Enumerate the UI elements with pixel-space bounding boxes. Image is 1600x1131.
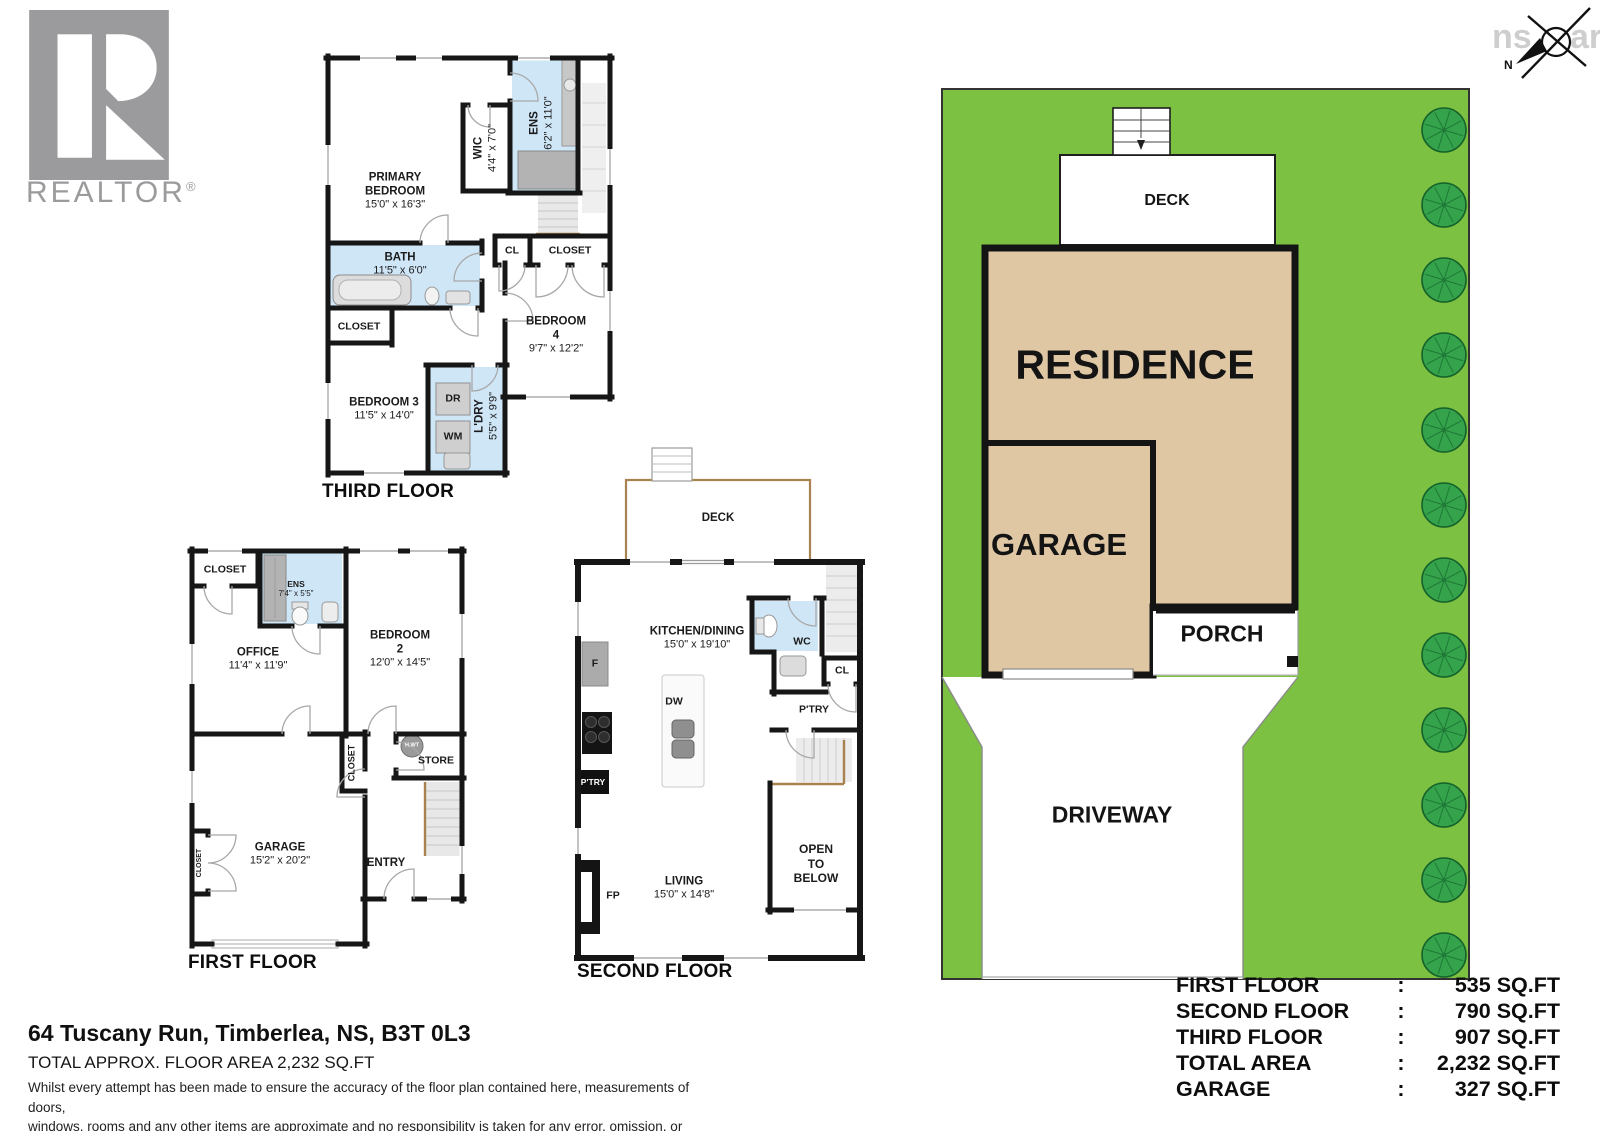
realtor-logo-icon [28, 10, 170, 180]
first-floor-title: FIRST FLOOR [188, 952, 317, 974]
appliance-label-fridge: F [592, 658, 598, 671]
disclaimer-line-1: Whilst every attempt has been made to en… [28, 1078, 728, 1117]
room-label-closet-small: CLOSET [338, 321, 381, 334]
area-row-value: 907 SQ.FT [1408, 1024, 1560, 1050]
room-label-closet-hall: CLOSET [549, 245, 592, 258]
open-to-below-label: OPEN TO BELOW [791, 842, 841, 886]
third-floor-title: THIRD FLOOR [322, 481, 454, 503]
room-label-store: STORE [418, 755, 454, 768]
room-label-laundry: L'DRY 5'5" x 9'9" [474, 392, 501, 440]
registered-mark: ® [186, 179, 199, 194]
table-row: TOTAL AREA : 2,232 SQ.FT [1176, 1050, 1560, 1076]
north-label: N [1504, 58, 1513, 72]
room-label-closet-top: CLOSET [204, 564, 247, 577]
first-stairs [425, 782, 462, 856]
room-label-bedroom4: BEDROOM 4 9'7" x 12'2" [526, 314, 586, 355]
area-row-value: 790 SQ.FT [1408, 998, 1560, 1024]
room-label-pantry-left: P'TRY [581, 777, 605, 787]
area-row-label: GARAGE [1176, 1076, 1394, 1102]
disclaimer-line-2: windows, rooms and any other items are a… [28, 1117, 728, 1131]
second-floor-title: SECOND FLOOR [577, 961, 732, 983]
room-label-bedroom3: BEDROOM 3 11'5" x 14'0" [349, 395, 419, 422]
room-label-cl2: CL [835, 665, 849, 678]
table-row: GARAGE : 327 SQ.FT [1176, 1076, 1560, 1102]
appliance-label-dishwasher: DW [665, 696, 683, 709]
room-label-bath: BATH 11'5" x 6'0" [373, 250, 426, 277]
third-floor-plan: PRIMARY BEDROOM 15'0" x 16'3" WIC 4'4" x… [320, 53, 616, 503]
area-row-label: FIRST FLOOR [1176, 972, 1394, 998]
table-row: THIRD FLOOR : 907 SQ.FT [1176, 1024, 1560, 1050]
area-row-colon: : [1394, 1076, 1408, 1102]
room-label-closet-mid: CLOSET [347, 745, 358, 782]
room-label-wc: WC [793, 636, 811, 649]
room-label-wic: WIC 4'4" x 7'0" [473, 124, 500, 172]
fireplace-label: FP [606, 890, 619, 903]
area-row-colon: : [1394, 998, 1408, 1024]
area-row-colon: : [1394, 972, 1408, 998]
disclaimer: Whilst every attempt has been made to en… [28, 1078, 728, 1131]
realtor-logo-text: REALTOR® [26, 176, 236, 210]
area-row-value: 2,232 SQ.FT [1408, 1050, 1560, 1076]
compass-icon [1492, 4, 1600, 90]
area-row-label: TOTAL AREA [1176, 1050, 1394, 1076]
site-porch-label: PORCH [1180, 621, 1263, 648]
area-row-label: THIRD FLOOR [1176, 1024, 1394, 1050]
appliance-label-washer: WM [444, 431, 463, 444]
room-label-kitchen-dining: KITCHEN/DINING 15'0" x 19'10" [650, 624, 745, 651]
room-label-cl: CL [505, 245, 519, 258]
compass-rose: ns ar N [1492, 4, 1600, 90]
room-label-first-ens: ENS 7'4" x 5'5" [279, 579, 314, 599]
site-residence-shape [985, 248, 1298, 679]
site-garage-label: GARAGE [991, 527, 1127, 563]
room-label-bedroom2: BEDROOM 2 12'0" x 14'5" [366, 628, 434, 669]
table-row: FIRST FLOOR : 535 SQ.FT [1176, 972, 1560, 998]
third-floor-graphic [320, 53, 616, 503]
area-row-colon: : [1394, 1024, 1408, 1050]
room-label-garage: GARAGE 15'2" x 20'2" [250, 840, 310, 867]
second-floor-plan: DECK KITCHEN/DINING 15'0" x 19'10" WC CL… [574, 440, 866, 985]
room-label-primary-bedroom: PRIMARY BEDROOM 15'0" x 16'3" [348, 170, 442, 211]
site-plan: DECK RESIDENCE GARAGE PORCH DRIVEWAY [941, 88, 1470, 980]
first-floor-plan: CLOSET ENS 7'4" x 5'5" OFFICE 11'4" x 11… [184, 546, 468, 974]
floor-area-table: FIRST FLOOR : 535 SQ.FT SECOND FLOOR : 7… [1176, 972, 1560, 1102]
area-row-label: SECOND FLOOR [1176, 998, 1394, 1024]
second-deck-outline [626, 448, 810, 562]
area-row-value: 535 SQ.FT [1408, 972, 1560, 998]
area-row-value: 327 SQ.FT [1408, 1076, 1560, 1102]
realtor-logo: REALTOR® [28, 10, 228, 220]
room-label-office: OFFICE 11'4" x 11'9" [229, 645, 288, 672]
footer-info: 64 Tuscany Run, Timberlea, NS, B3T 0L3 T… [28, 1020, 728, 1131]
room-label-closet-left: CLOSET [196, 849, 204, 877]
floor-plan-sheet: REALTOR® ns ar N [0, 0, 1600, 1131]
table-row: SECOND FLOOR : 790 SQ.FT [1176, 998, 1560, 1024]
site-residence-label: RESIDENCE [1015, 342, 1254, 389]
total-floor-area: TOTAL APPROX. FLOOR AREA 2,232 SQ.FT [28, 1053, 728, 1073]
hot-water-tank-label: H.WT [405, 743, 419, 750]
room-label-entry: ENTRY [367, 856, 406, 870]
deck-label: DECK [702, 511, 735, 525]
area-row-colon: : [1394, 1050, 1408, 1076]
room-label-living: LIVING 15'0" x 14'8" [654, 874, 714, 901]
appliance-label-dryer: DR [445, 393, 460, 406]
site-deck-label: DECK [1144, 192, 1189, 210]
room-label-ens: ENS 6'2" x 11'0" [529, 96, 556, 149]
room-label-pantry-right: P'TRY [799, 704, 829, 717]
site-driveway-label: DRIVEWAY [1052, 802, 1173, 829]
property-address: 64 Tuscany Run, Timberlea, NS, B3T 0L3 [28, 1020, 728, 1047]
